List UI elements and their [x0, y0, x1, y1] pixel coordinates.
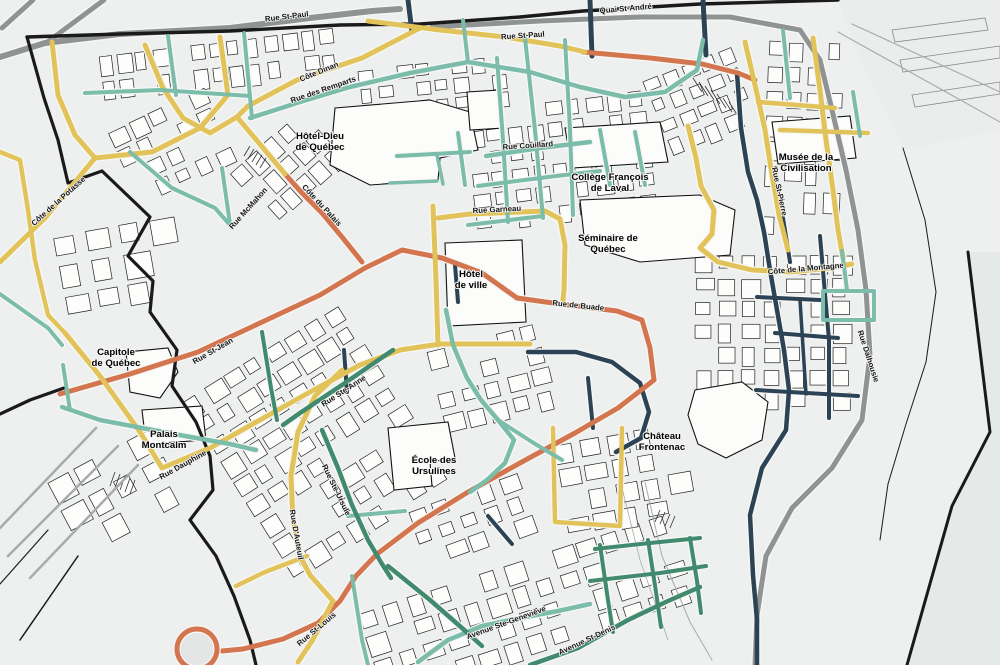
building	[513, 396, 530, 412]
building	[764, 371, 779, 386]
building	[719, 347, 735, 363]
building	[194, 69, 210, 91]
building	[191, 44, 206, 60]
building	[135, 52, 147, 71]
building	[467, 408, 486, 428]
building	[379, 85, 394, 97]
musee-de-la-civilisation-label: Musée de laCivilisation	[779, 152, 834, 174]
ne-yellow-h2	[780, 130, 868, 133]
building	[229, 66, 245, 88]
building	[454, 77, 470, 93]
building	[319, 28, 334, 44]
building	[833, 301, 850, 314]
building	[516, 189, 532, 203]
building	[588, 488, 606, 509]
building	[718, 280, 735, 296]
building	[695, 325, 711, 338]
building	[765, 348, 780, 362]
building	[117, 53, 134, 74]
building	[128, 282, 150, 306]
capitole-de-quebec-label: Capitolede Québec	[91, 347, 141, 369]
hotel-dieu-de-quebec-label: Hôtel-Dieude Québec	[295, 131, 345, 153]
building	[54, 236, 76, 257]
building	[641, 479, 660, 501]
building	[668, 471, 694, 495]
building	[99, 56, 113, 77]
building	[742, 347, 754, 366]
building	[480, 358, 499, 377]
building	[768, 67, 783, 83]
building	[559, 466, 583, 487]
t-hdv-h2	[390, 181, 437, 183]
building	[742, 324, 760, 338]
building	[833, 371, 848, 386]
building	[417, 81, 432, 95]
building	[301, 31, 315, 52]
quebec-city-map: Rue St-PaulRue St-PaulQuai St-AndréCôte …	[0, 0, 1000, 665]
building	[697, 371, 711, 390]
building	[586, 97, 604, 113]
building	[833, 348, 846, 364]
building	[803, 193, 815, 214]
building	[810, 370, 828, 385]
building	[66, 293, 92, 314]
building	[829, 44, 840, 60]
building	[438, 391, 456, 409]
building	[150, 217, 179, 246]
building	[742, 301, 754, 316]
building	[787, 347, 800, 360]
building	[361, 89, 372, 104]
building	[86, 228, 112, 251]
building	[264, 35, 279, 52]
building	[545, 101, 563, 116]
building	[435, 79, 447, 90]
building	[268, 61, 281, 79]
map-viewport: Rue St-PaulRue St-PaulQuai St-AndréCôte …	[0, 0, 1000, 665]
building	[787, 279, 805, 292]
building	[741, 370, 755, 384]
hotel-de-ville-label: Hôtelde ville	[455, 269, 488, 291]
chateau-frontenac-label: ChâteauFrontenac	[639, 431, 686, 453]
building	[97, 287, 119, 307]
navy-stub-2	[590, 0, 592, 56]
building	[92, 258, 113, 282]
building	[696, 303, 710, 315]
ecole-des-ursulines-label: École desUrsulines	[412, 454, 457, 477]
building	[811, 347, 824, 359]
building	[637, 454, 654, 472]
building	[548, 122, 563, 137]
building	[580, 437, 601, 456]
building	[226, 41, 238, 56]
building	[697, 278, 715, 290]
building	[719, 301, 735, 316]
building	[282, 33, 299, 51]
building	[576, 181, 588, 197]
building	[718, 324, 730, 343]
building	[59, 264, 80, 289]
building	[789, 43, 803, 62]
